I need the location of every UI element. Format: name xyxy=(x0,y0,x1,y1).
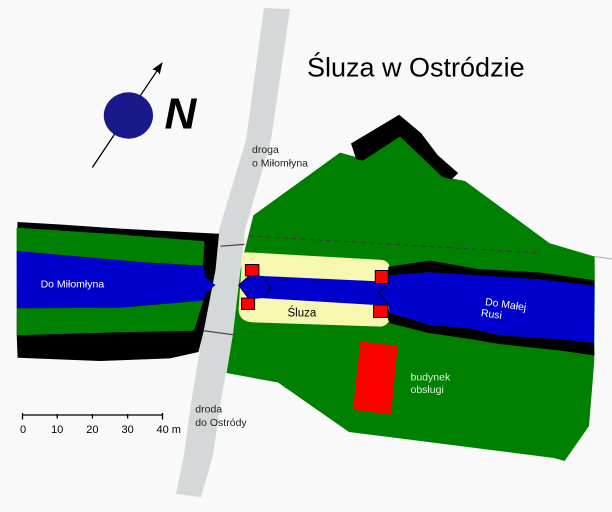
svg-text:obsługi: obsługi xyxy=(411,384,444,396)
svg-text:Do Miłomłyna: Do Miłomłyna xyxy=(41,279,105,291)
svg-text:droga: droga xyxy=(252,144,279,156)
svg-text:20: 20 xyxy=(86,424,98,436)
svg-text:o Miłomłyna: o Miłomłyna xyxy=(252,158,308,170)
svg-text:30: 30 xyxy=(121,424,133,436)
svg-text:N: N xyxy=(165,90,198,139)
svg-text:Śluza: Śluza xyxy=(288,307,317,320)
svg-text:do Ostródy: do Ostródy xyxy=(195,417,247,429)
svg-text:budynek: budynek xyxy=(411,371,451,383)
svg-text:10: 10 xyxy=(51,424,63,436)
svg-text:0: 0 xyxy=(20,424,26,436)
svg-text:Śluza w Ostródzie: Śluza w Ostródzie xyxy=(307,51,525,83)
svg-text:40 m: 40 m xyxy=(157,424,181,436)
svg-text:droda: droda xyxy=(195,404,222,416)
